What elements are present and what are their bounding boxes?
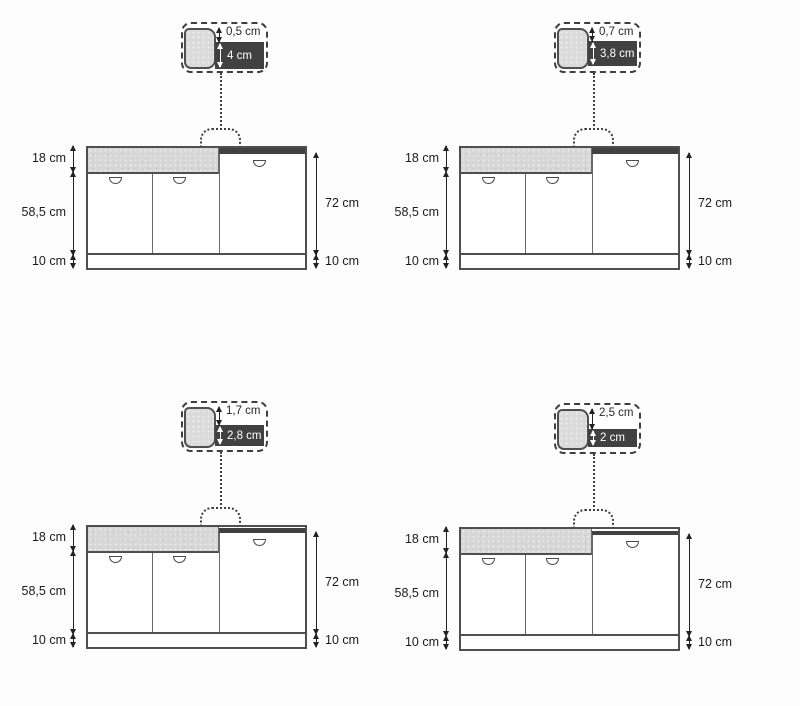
diagram-bottom-right: 2 cm 2,5 cm 18 cm 58,5 cm 10 cm 72 cm 10… [373,381,773,681]
drawer-fascia-band [88,148,219,174]
drawer-fascia-band [88,527,219,553]
detail-callout: 2 cm 2,5 cm [554,403,641,454]
dimension-label-upper: 18 cm [0,151,66,165]
section-divider-line [592,535,593,634]
plinth-line [461,634,678,636]
dimension-label-upper: 18 cm [373,151,439,165]
worktop-band [219,528,305,533]
dimension-arrow-doors [73,172,74,255]
dimension-label-plinth-left: 10 cm [0,633,66,647]
worktop-section-band: 4 cm [215,42,264,69]
worktop-edge-profile [557,28,589,69]
section-divider-line [219,154,220,253]
worktop-edge-profile [557,409,589,450]
door-handle [253,160,266,167]
dimension-label-right-height: 72 cm [325,575,359,589]
dimension-label-doors: 58,5 cm [0,584,66,598]
dimension-arrow-plinth-right [689,636,690,649]
callout-connector-line [220,452,222,509]
door-divider-line [152,553,153,632]
cabinet-elevation [459,527,680,651]
diagram-bottom-left: 2,8 cm 1,7 cm 18 cm 58,5 cm 10 cm 72 cm … [0,379,400,679]
dimension-label-plinth-right: 10 cm [698,254,732,268]
thickness-dimension-label: 3,8 cm [600,41,635,66]
overhang-arrow [592,409,593,429]
thickness-dimension-label: 4 cm [227,42,252,69]
door-handle [109,556,122,563]
thickness-arrow [220,44,221,67]
thickness-dimension-label: 2 cm [600,429,625,447]
worktop-band [219,148,305,154]
dimension-arrow-right-height [316,532,317,634]
dimension-label-right-height: 72 cm [698,577,732,591]
overhang-dimension-label: 2,5 cm [599,407,634,419]
dimension-label-right-height: 72 cm [698,196,732,210]
plinth-line [88,253,305,255]
dimension-arrow-right-height [689,153,690,255]
dimension-label-upper: 18 cm [373,532,439,546]
dimension-arrow-plinth-right [316,255,317,268]
door-divider-line [152,174,153,253]
worktop-section-band: 2 cm [588,429,637,447]
overhang-dimension-label: 0,7 cm [599,26,634,38]
drawer-fascia-band [461,529,592,555]
callout-connector-line [593,73,595,130]
dimension-arrow-upper [73,146,74,172]
dimension-label-doors: 58,5 cm [373,205,439,219]
callout-connector-line [220,73,222,130]
dimension-label-doors: 58,5 cm [373,586,439,600]
dimension-arrow-plinth-left [446,255,447,268]
thickness-arrow [593,431,594,445]
dimension-label-plinth-left: 10 cm [373,635,439,649]
dimension-label-plinth-left: 10 cm [0,254,66,268]
door-handle [546,177,559,184]
dimension-label-plinth-right: 10 cm [325,633,359,647]
dimension-arrow-doors [446,553,447,636]
door-handle [173,177,186,184]
thickness-arrow [220,427,221,444]
dimension-arrow-plinth-left [73,634,74,647]
section-divider-line [592,154,593,253]
detail-callout: 3,8 cm 0,7 cm [554,22,641,73]
door-handle [626,541,639,548]
dimension-arrow-upper [446,146,447,172]
detail-callout: 4 cm 0,5 cm [181,22,268,73]
door-handle [626,160,639,167]
detail-callout: 2,8 cm 1,7 cm [181,401,268,452]
dimension-label-plinth-right: 10 cm [698,635,732,649]
section-divider-line [219,533,220,632]
dimension-label-upper: 18 cm [0,530,66,544]
overhang-arrow [219,407,220,425]
dimension-arrow-right-height [689,534,690,636]
thickness-arrow [593,43,594,64]
worktop-thickness-diagram: 4 cm 0,5 cm 18 cm 58,5 cm 10 cm 72 cm 10… [0,0,800,706]
dimension-arrow-plinth-right [316,634,317,647]
door-handle [482,177,495,184]
dimension-arrow-plinth-left [446,636,447,649]
worktop-edge-profile [184,28,216,69]
dimension-arrow-upper [446,527,447,553]
dimension-arrow-plinth-left [73,255,74,268]
dimension-arrow-upper [73,525,74,551]
dimension-label-doors: 58,5 cm [0,205,66,219]
callout-connector-line [593,454,595,511]
door-handle [253,539,266,546]
overhang-arrow [219,28,220,42]
plinth-line [88,632,305,634]
door-divider-line [525,174,526,253]
thickness-dimension-label: 2,8 cm [227,425,262,446]
dimension-arrow-right-height [316,153,317,255]
diagram-top-right: 3,8 cm 0,7 cm 18 cm 58,5 cm 10 cm 72 cm … [373,0,773,300]
drawer-fascia-band [461,148,592,174]
dimension-label-plinth-right: 10 cm [325,254,359,268]
overhang-dimension-label: 0,5 cm [226,26,261,38]
cabinet-elevation [459,146,680,270]
worktop-band [592,531,678,535]
door-handle [109,177,122,184]
cabinet-elevation [86,146,307,270]
door-handle [546,558,559,565]
dimension-arrow-plinth-right [689,255,690,268]
door-divider-line [525,555,526,634]
worktop-section-band: 3,8 cm [588,41,637,66]
diagram-top-left: 4 cm 0,5 cm 18 cm 58,5 cm 10 cm 72 cm 10… [0,0,400,300]
worktop-edge-profile [184,407,216,448]
door-handle [173,556,186,563]
dimension-arrow-doors [446,172,447,255]
dimension-label-plinth-left: 10 cm [373,254,439,268]
dimension-arrow-doors [73,551,74,634]
cabinet-elevation [86,525,307,649]
plinth-line [461,253,678,255]
overhang-arrow [592,28,593,41]
dimension-label-right-height: 72 cm [325,196,359,210]
overhang-dimension-label: 1,7 cm [226,405,261,417]
worktop-section-band: 2,8 cm [215,425,264,446]
worktop-band [592,148,678,154]
door-handle [482,558,495,565]
